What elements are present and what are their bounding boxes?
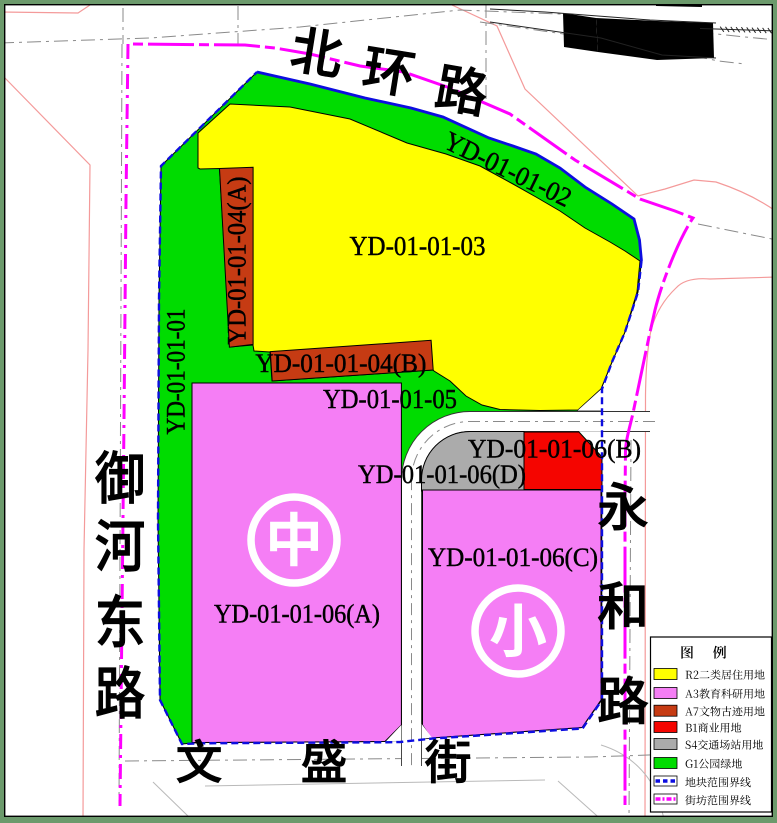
svg-text:YD-01-01-04(A): YD-01-01-04(A) [223,177,252,345]
svg-text:YD-01-01-04(B): YD-01-01-04(B) [255,349,426,378]
svg-text:YD-01-01-05: YD-01-01-05 [323,384,457,414]
svg-text:YD-01-01-06(B): YD-01-01-06(B) [468,435,641,464]
svg-text:YD-01-01-03: YD-01-01-03 [350,231,486,261]
svg-text:YD-01-01-06(D): YD-01-01-06(D) [358,460,526,489]
svg-text:YD-01-01-01: YD-01-01-01 [162,309,191,435]
svg-text:YD-01-01-06(C): YD-01-01-06(C) [428,543,598,572]
svg-text:YD-01-01-06(A): YD-01-01-06(A) [214,600,380,629]
